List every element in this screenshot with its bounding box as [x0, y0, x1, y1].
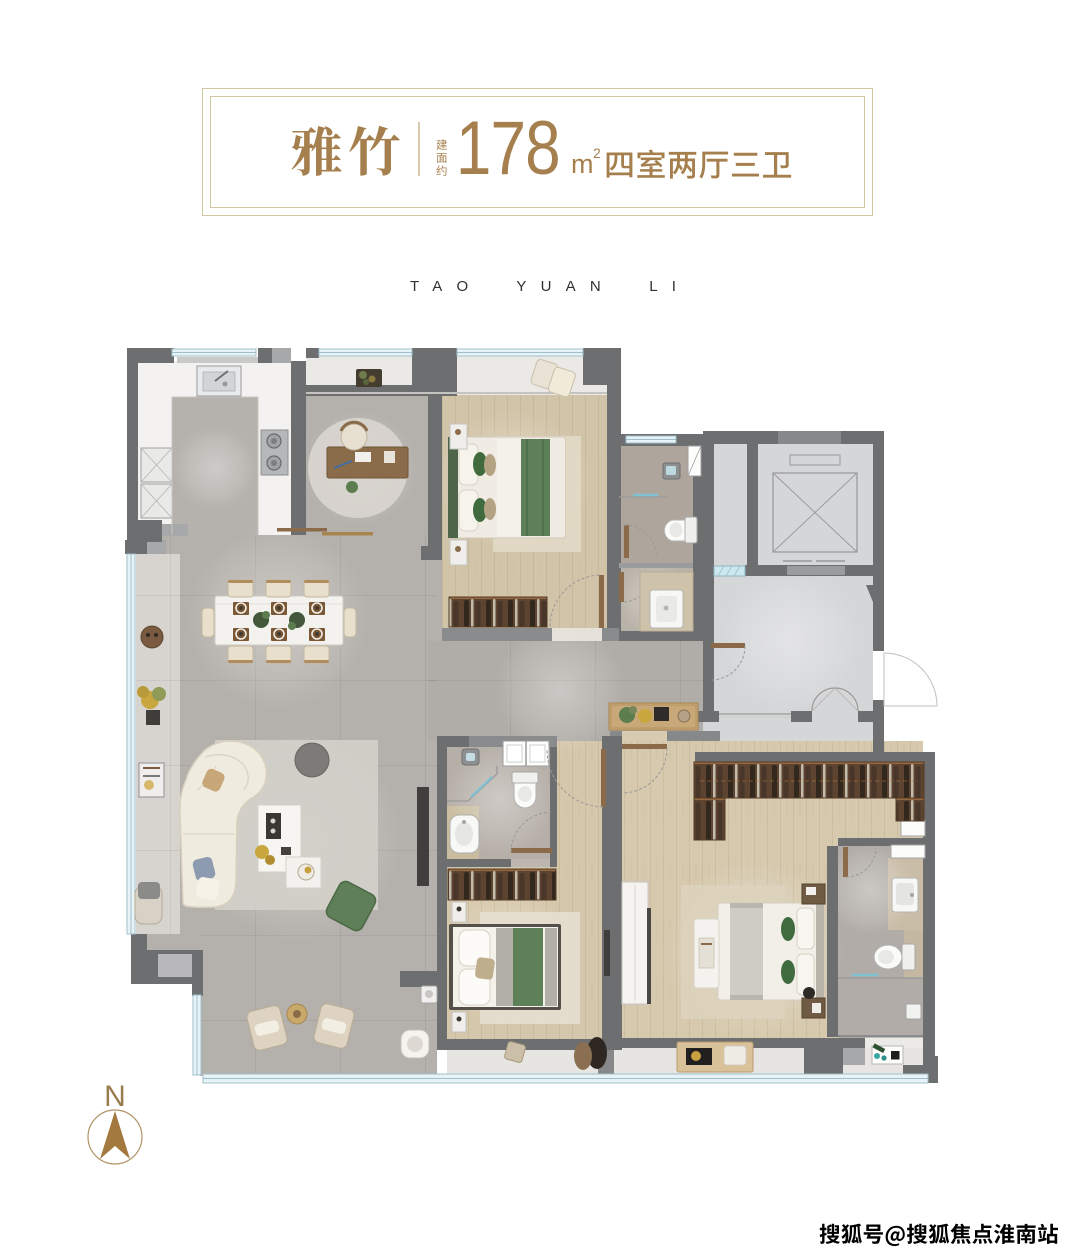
svg-text:178: 178 — [456, 105, 560, 191]
svg-text:TAO YUAN LI: TAO YUAN LI — [410, 278, 690, 295]
svg-text:2: 2 — [593, 145, 601, 161]
svg-text:N: N — [104, 1080, 126, 1113]
svg-text:m: m — [571, 149, 594, 179]
